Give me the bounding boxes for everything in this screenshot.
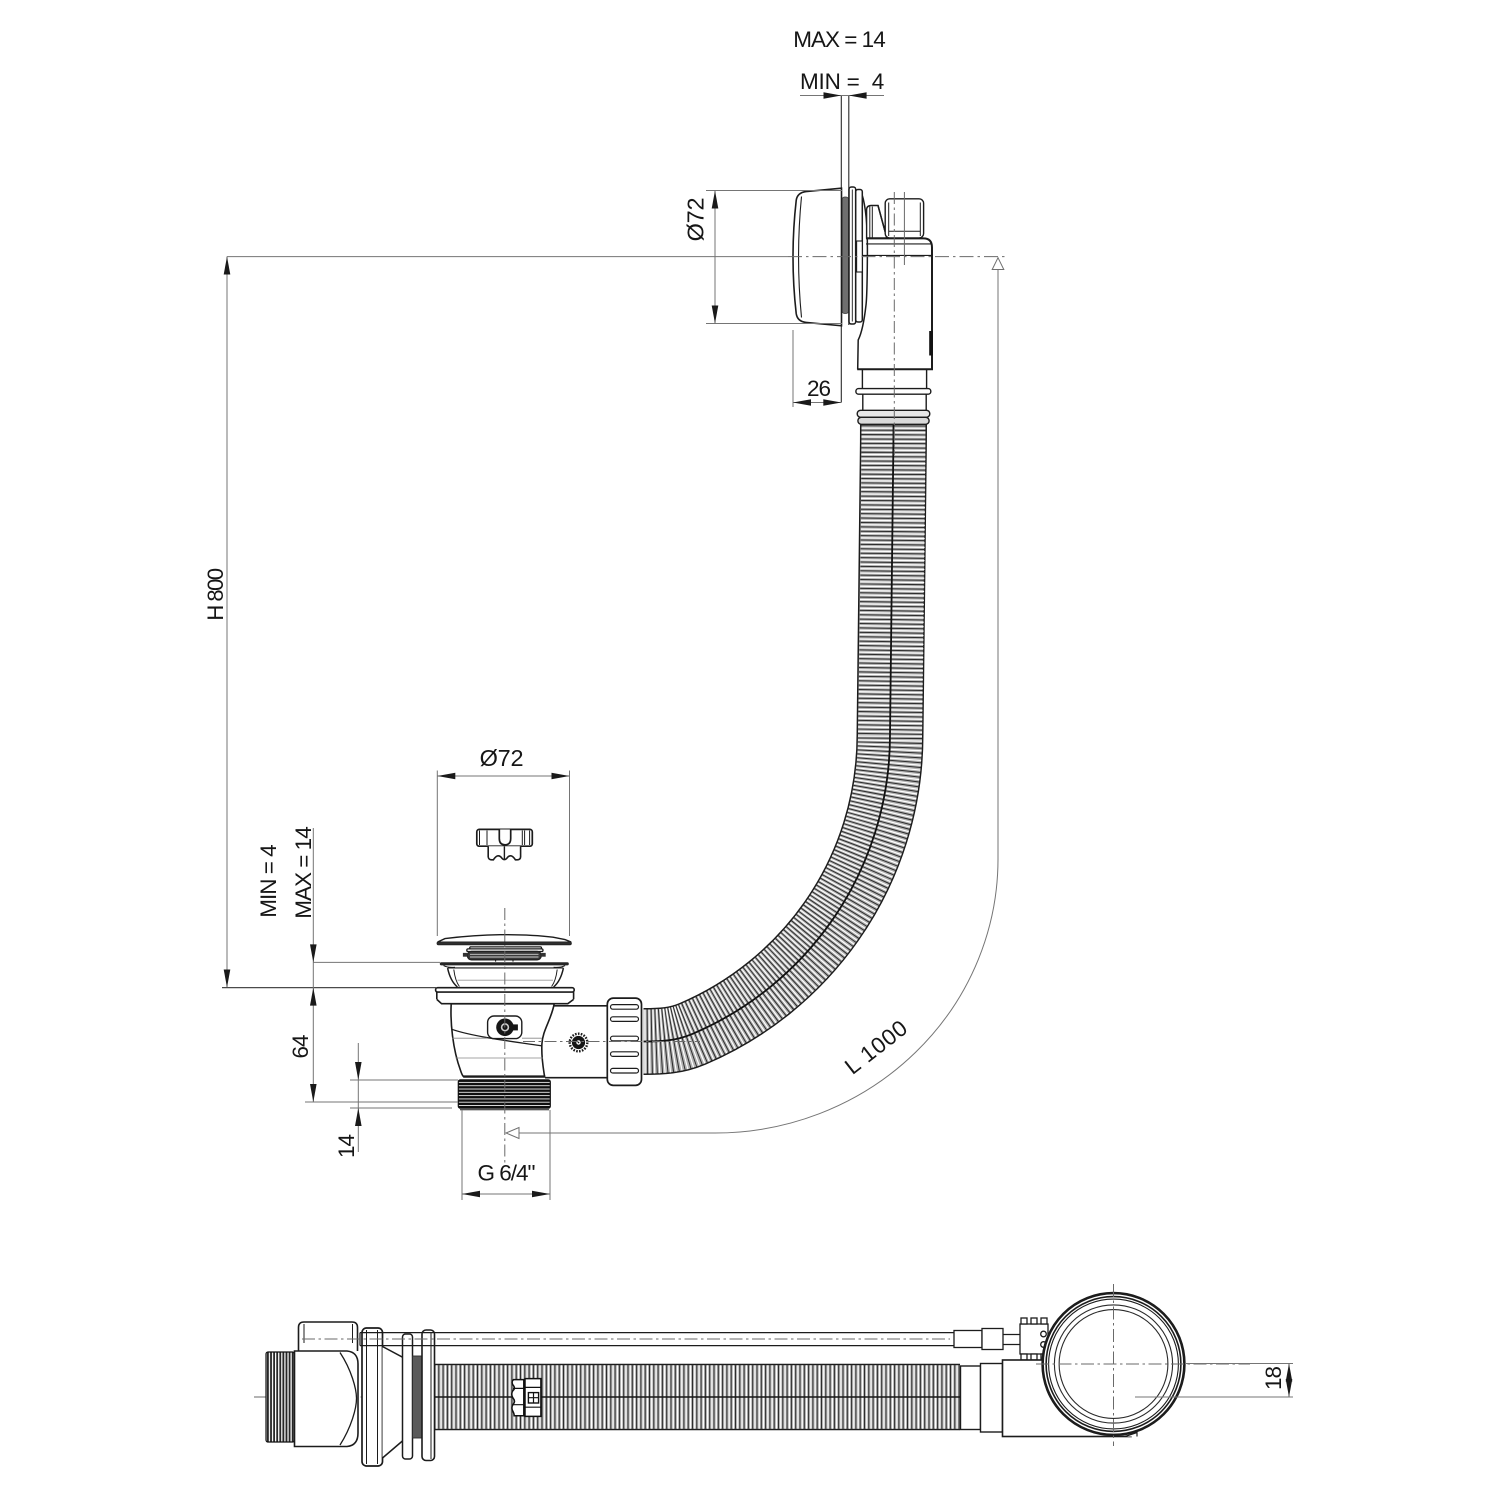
svg-text:MIN = 4: MIN = 4: [800, 69, 884, 94]
svg-text:MIN = 4: MIN = 4: [256, 845, 281, 918]
svg-text:Ø72: Ø72: [683, 198, 709, 242]
svg-text:Ø72: Ø72: [480, 745, 524, 771]
svg-text:18: 18: [1261, 1367, 1286, 1391]
svg-text:G 6/4": G 6/4": [477, 1161, 535, 1186]
svg-text:14: 14: [334, 1135, 359, 1159]
svg-text:MAX = 14: MAX = 14: [291, 827, 316, 919]
svg-text:H 800: H 800: [203, 568, 228, 620]
svg-text:MAX = 14: MAX = 14: [793, 27, 885, 52]
svg-text:64: 64: [288, 1035, 313, 1059]
svg-text:26: 26: [807, 376, 831, 401]
